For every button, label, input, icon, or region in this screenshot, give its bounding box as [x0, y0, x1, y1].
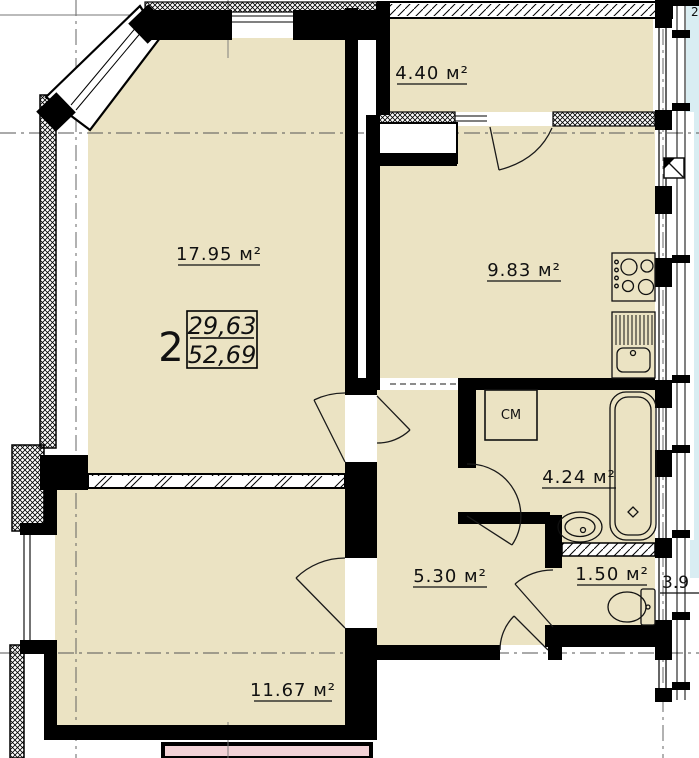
bathroom-area-label: 4.24 м²: [542, 467, 616, 488]
left-wall-notch: [12, 445, 44, 531]
bedroom-left-window: [24, 533, 30, 645]
living-room-area-label: 17.95 м²: [176, 244, 262, 265]
kitchen-area-label: 9.83 м²: [487, 260, 561, 281]
bathroom-left-wall: [458, 390, 476, 468]
apartment-total-area: 52,69: [188, 341, 257, 369]
balcony-area-label: 4.40 м²: [395, 63, 469, 84]
kitchen-window: [455, 116, 487, 121]
apartment-living-area: 29,63: [188, 312, 257, 340]
hallway-area-label: 5.30 м²: [413, 566, 487, 587]
washing-machine-label: СМ: [501, 408, 521, 423]
adjacent-area-partial-label: 3.9: [662, 573, 689, 593]
wc-top-partition: [562, 543, 655, 556]
hallway-bottom-wall: [377, 645, 500, 660]
living-top-window: [232, 16, 293, 22]
bathroom-top-wall: [458, 378, 655, 390]
vent-shaft-symbol: [664, 158, 684, 178]
floor-plan-page: 17.95 м² 9.83 м² 4.40 м² 4.24 м² 5.30 м²…: [0, 0, 699, 758]
living-bedroom-partition: [88, 474, 345, 488]
apartment-number: 2: [158, 325, 183, 371]
bedroom-area-label: 11.67 м²: [250, 680, 336, 701]
balcony-left-wall: [376, 2, 390, 115]
wc-area-label: 1.50 м²: [575, 564, 649, 585]
bedroom-bottom-wall: [45, 725, 360, 740]
left-exterior-wall: [40, 95, 56, 448]
hallway-floor: [377, 390, 458, 645]
corner-partial-label: 2: [691, 5, 699, 19]
floor-plan: 17.95 м² 9.83 м² 4.40 м² 4.24 м² 5.30 м²…: [0, 0, 699, 758]
adjacent-apartment-pink-room: [163, 744, 371, 758]
